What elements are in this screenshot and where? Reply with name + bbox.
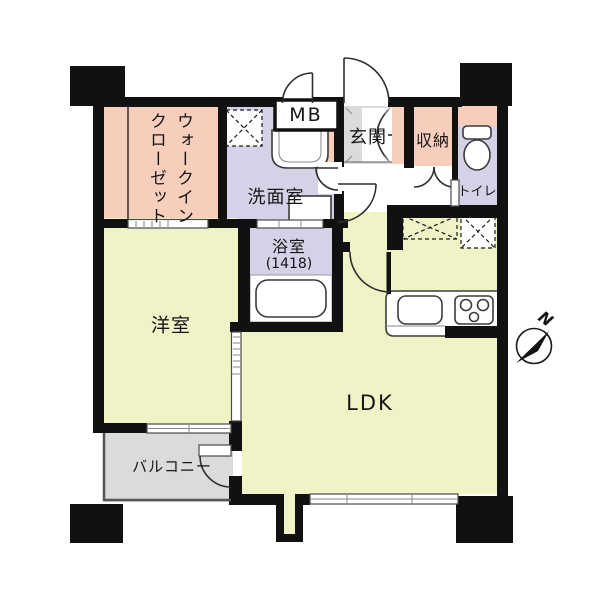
wall-right xyxy=(497,106,508,496)
pillar-bottom-left xyxy=(70,504,123,543)
wall-bathroom-west xyxy=(238,219,250,332)
wall-closet-bottom-a xyxy=(104,219,128,228)
room-label-mb: MB xyxy=(289,104,322,126)
room-label-western-room: 洋室 xyxy=(151,311,191,338)
wall-top-right xyxy=(388,97,462,107)
kitchen-half-wall xyxy=(445,326,500,338)
notch-bottom xyxy=(276,534,303,542)
kitchen-sink xyxy=(398,296,442,324)
ldk-floor-main xyxy=(338,212,497,494)
room-label-toilet: トイレ xyxy=(457,181,496,200)
burner-2 xyxy=(478,300,489,311)
wall-storage-toilet xyxy=(452,106,458,180)
kitchen xyxy=(386,291,500,338)
pillar-bottom-right xyxy=(456,496,513,543)
room-label-entrance: 玄関 xyxy=(349,123,387,149)
toilet-fixture xyxy=(463,126,491,170)
compass xyxy=(516,329,552,364)
wall-bathroom-south xyxy=(230,322,343,332)
wall-bottom-a xyxy=(242,494,278,505)
entrance-door-arc xyxy=(344,58,389,103)
bathtub-area xyxy=(250,275,332,322)
room-label-bathroom-size: (1418) xyxy=(266,256,313,272)
room-label-balcony: バルコニー xyxy=(132,456,212,477)
pillar-top-left xyxy=(70,66,125,106)
wall-entrance-east xyxy=(404,104,414,168)
wall-bottom-b xyxy=(303,494,310,505)
pillar-top-right xyxy=(460,63,512,106)
floor-plan-drawing xyxy=(0,0,600,598)
wall-left xyxy=(93,97,104,433)
wall-ldk-north xyxy=(390,205,497,218)
wall-hall-stub xyxy=(338,242,350,252)
room-label-bathroom: 浴室 xyxy=(272,233,306,257)
wall-bathroom-east xyxy=(332,219,343,332)
toilet-tank xyxy=(463,126,491,139)
toilet-shelf xyxy=(456,106,497,128)
bathtub xyxy=(256,280,326,317)
balcony-door-leaf xyxy=(199,445,231,456)
toilet-bowl xyxy=(464,140,490,170)
bathroom-door xyxy=(257,220,323,228)
ldk-notch-floor xyxy=(284,494,295,534)
wall-hall-corner xyxy=(387,205,403,250)
wall-entrance-west-b xyxy=(334,191,344,220)
room-label-ldk: LDK xyxy=(346,391,394,415)
storage-door-arc-left xyxy=(414,167,434,187)
burner-1 xyxy=(461,300,472,311)
room-label-walk-in-closet: ウォークインクローゼット xyxy=(142,112,196,226)
wall-westernroom-south xyxy=(93,423,147,433)
entrance-side-cabinet xyxy=(392,107,404,164)
ldk-door-leaf xyxy=(387,252,392,294)
wall-closet-washroom xyxy=(218,106,227,228)
burner-3 xyxy=(470,313,479,322)
room-label-washroom: 洗面室 xyxy=(248,183,305,209)
room-label-storage: 収納 xyxy=(416,127,450,151)
westernroom-ldk-sliding-door xyxy=(232,332,242,421)
ldk-floor-west xyxy=(242,322,338,494)
floor-plan: ウォークインクローゼット MB 玄関 収納 トイレ 洗面室 浴室 (1418) … xyxy=(0,0,600,598)
